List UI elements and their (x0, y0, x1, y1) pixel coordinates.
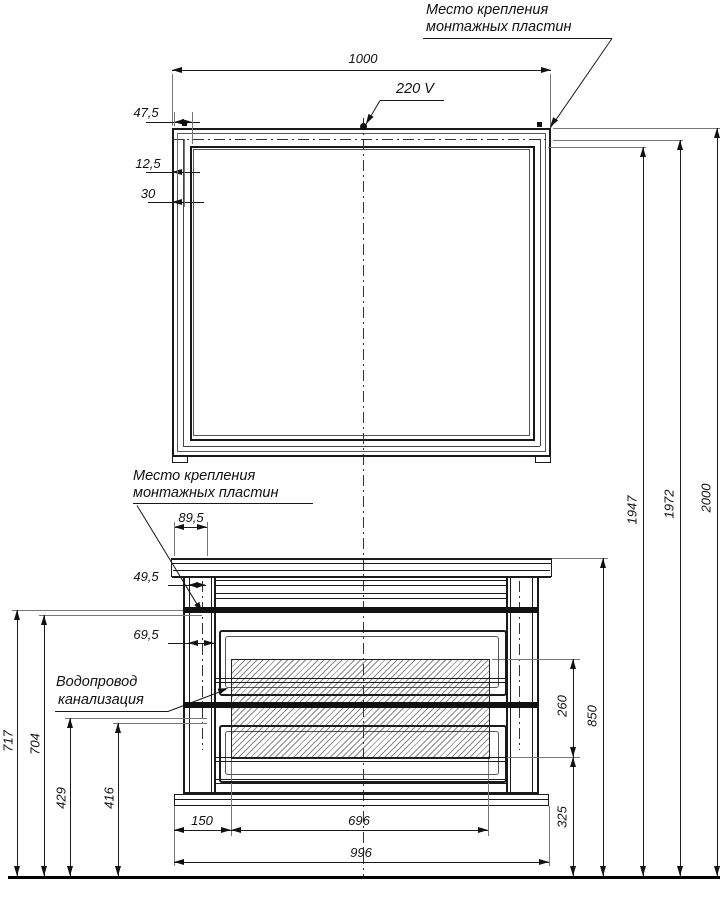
ext-line (207, 522, 208, 556)
mounting-plate-mark-right (537, 122, 542, 127)
arrowhead (640, 147, 646, 157)
dim-mirror-width: 1000 (341, 51, 385, 66)
hatch-bottom-line1 (215, 757, 506, 758)
dim-line-2000 (717, 128, 718, 876)
arrowhead (714, 866, 720, 876)
arrowhead (600, 558, 606, 568)
arrowhead (172, 199, 182, 205)
dim-cutout-left: 150 (182, 813, 222, 828)
cross-rail-upper (183, 607, 538, 613)
mirror-frame-step2-bottom (183, 446, 540, 447)
cornice-profile2 (173, 570, 550, 571)
mirror-mounting-centerline (172, 139, 551, 140)
mirror-frame-step2-right (540, 139, 541, 446)
arrowhead (640, 866, 646, 876)
label-mounting-mid-line2: монтажных пластин (133, 485, 278, 501)
mirror-glass-inner-edge (193, 149, 530, 436)
arrowhead (115, 866, 121, 876)
ext-line (553, 140, 683, 141)
dim-pipe-level-704: 704 (28, 733, 43, 755)
dim-cutout-width: 696 (339, 813, 379, 828)
dim-plate-offset-89: 89,5 (171, 510, 211, 525)
installation-drawing: 1000 47,5 12,5 30 220 V Место крепления … (0, 0, 723, 900)
dim-glass-top-height: 1947 (625, 496, 640, 525)
arrowhead (41, 615, 47, 625)
arrowhead (539, 859, 549, 865)
dim-plate-height: 1972 (662, 490, 677, 519)
dim-frame-offset-30: 30 (133, 186, 163, 201)
arrowhead (174, 524, 184, 530)
top-band-line1 (215, 580, 506, 581)
dim-cabinet-top-height: 850 (585, 705, 600, 727)
voltage-underline (380, 100, 444, 101)
arrowhead (204, 640, 214, 646)
dim-cabinet-width: 996 (341, 845, 381, 860)
cornice-bottom (172, 576, 551, 578)
top-band-line4 (215, 598, 506, 599)
arrowhead (231, 827, 241, 833)
dim-pipe-level-416: 416 (102, 787, 117, 809)
dim-line-704 (44, 615, 45, 876)
dim-line-416 (118, 723, 119, 876)
dim-frame-offset-47: 47,5 (127, 105, 165, 120)
arrowhead (14, 610, 20, 620)
ext-line (174, 522, 175, 556)
arrowhead (182, 119, 192, 125)
arrowhead (541, 67, 551, 73)
mounting-top-leader (549, 38, 612, 129)
ext-line (184, 139, 185, 207)
top-band-line2 (215, 585, 506, 586)
label-voltage: 220 V (396, 81, 434, 97)
dim-pipe-level-717: 717 (1, 730, 16, 752)
mirror-foot-left (172, 455, 188, 463)
dim-total-height: 2000 (699, 484, 714, 513)
mirror-foot-right (535, 455, 551, 463)
dim-plate-offset-49: 49,5 (126, 569, 166, 584)
ext-line (172, 74, 173, 126)
label-mounting-mid-line1: Место крепления (133, 468, 255, 484)
arrowhead (570, 866, 576, 876)
dim-line-1947 (643, 147, 644, 876)
arrowhead (221, 827, 231, 833)
dim-line-325 (573, 757, 574, 876)
label-plumbing-line1: Водопровод (56, 674, 137, 690)
arrowhead (714, 128, 720, 138)
ext-line (12, 610, 202, 611)
ext-line (549, 806, 550, 866)
label-mounting-top-line1: Место крепления (426, 2, 548, 18)
arrowhead (196, 582, 206, 588)
ext-line (174, 112, 175, 126)
arrowhead (570, 757, 576, 767)
cross-rail-lower (183, 702, 538, 708)
arrowhead (14, 866, 20, 876)
plumbing-underline (55, 711, 168, 712)
arrowhead (600, 866, 606, 876)
dim-pipe-level-429: 429 (54, 787, 69, 809)
dim-plate-offset-69: 69,5 (126, 627, 166, 642)
label-plumbing-line2: канализация (58, 692, 144, 708)
arrowhead (41, 866, 47, 876)
ext-line (192, 112, 193, 144)
ext-line (39, 615, 202, 616)
plumbing-cutout-hatch (231, 659, 490, 759)
bottom-band-line2 (215, 783, 506, 784)
arrowhead (67, 866, 73, 876)
label-mounting-top-line2: монтажных пластин (426, 19, 571, 35)
dim-frame-offset-12: 12,5 (129, 156, 167, 171)
ext-line (553, 128, 720, 129)
dim-line-429 (70, 718, 71, 876)
cornice-top (171, 558, 552, 560)
dim-line-850 (603, 558, 604, 876)
ext-line (174, 806, 175, 866)
drawer-gap-line1 (215, 678, 506, 679)
ext-line (548, 147, 646, 148)
arrowhead (115, 723, 121, 733)
cornice-end-right (551, 558, 552, 577)
arrowhead (478, 827, 488, 833)
arrowhead (570, 747, 576, 757)
arrowhead (677, 866, 683, 876)
mounting-top-underline (423, 38, 612, 39)
cornice-profile1 (171, 563, 552, 564)
plumbing-leader (168, 689, 226, 712)
arrowhead (172, 67, 182, 73)
ground-line (8, 876, 720, 879)
dim-line-260 (573, 659, 574, 757)
ext-line (65, 718, 207, 719)
hatch-bottom-line2 (215, 761, 506, 762)
arrowhead (174, 859, 184, 865)
arrowhead (188, 640, 198, 646)
ext-line (113, 723, 207, 724)
mounting-mid-underline (133, 503, 313, 504)
dim-line-717 (17, 610, 18, 876)
ext-line (177, 133, 178, 177)
power-point-dot (360, 123, 367, 130)
drawer-gap-line2 (215, 682, 506, 683)
arrowhead (67, 718, 73, 728)
dim-line-1972 (680, 140, 681, 876)
dim-cutout-height: 260 (555, 695, 570, 717)
dim-line-996 (174, 862, 549, 863)
dim-line-mirror-width (172, 70, 551, 71)
arrowhead (570, 659, 576, 669)
top-band-line3 (215, 593, 506, 594)
arrowhead (677, 140, 683, 150)
arrowhead (197, 524, 207, 530)
dim-cutout-floor-height: 325 (555, 806, 570, 828)
